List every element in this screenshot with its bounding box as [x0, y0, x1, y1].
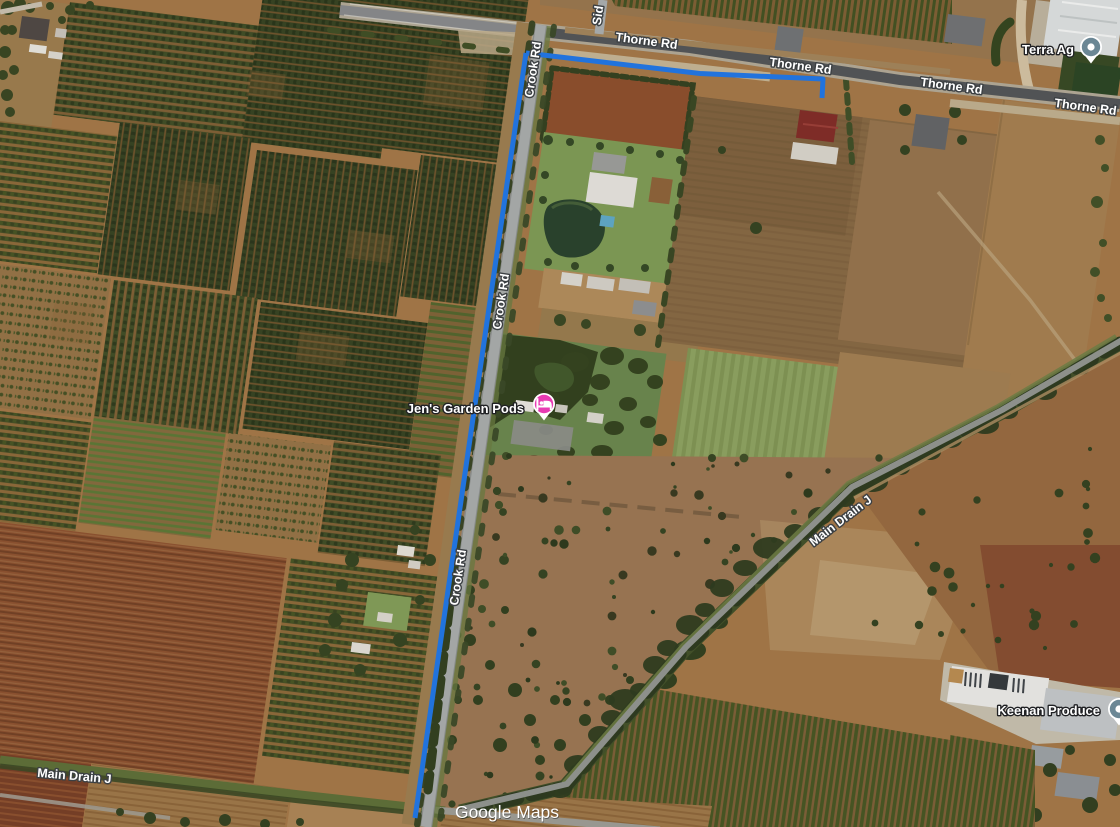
svg-text:Terra Ag: Terra Ag: [1022, 42, 1074, 57]
svg-text:Google Maps: Google Maps: [455, 802, 559, 822]
svg-text:Sid: Sid: [590, 5, 607, 26]
svg-text:Keenan Produce: Keenan Produce: [997, 703, 1100, 718]
svg-text:Jen's Garden Pods: Jen's Garden Pods: [407, 401, 524, 416]
